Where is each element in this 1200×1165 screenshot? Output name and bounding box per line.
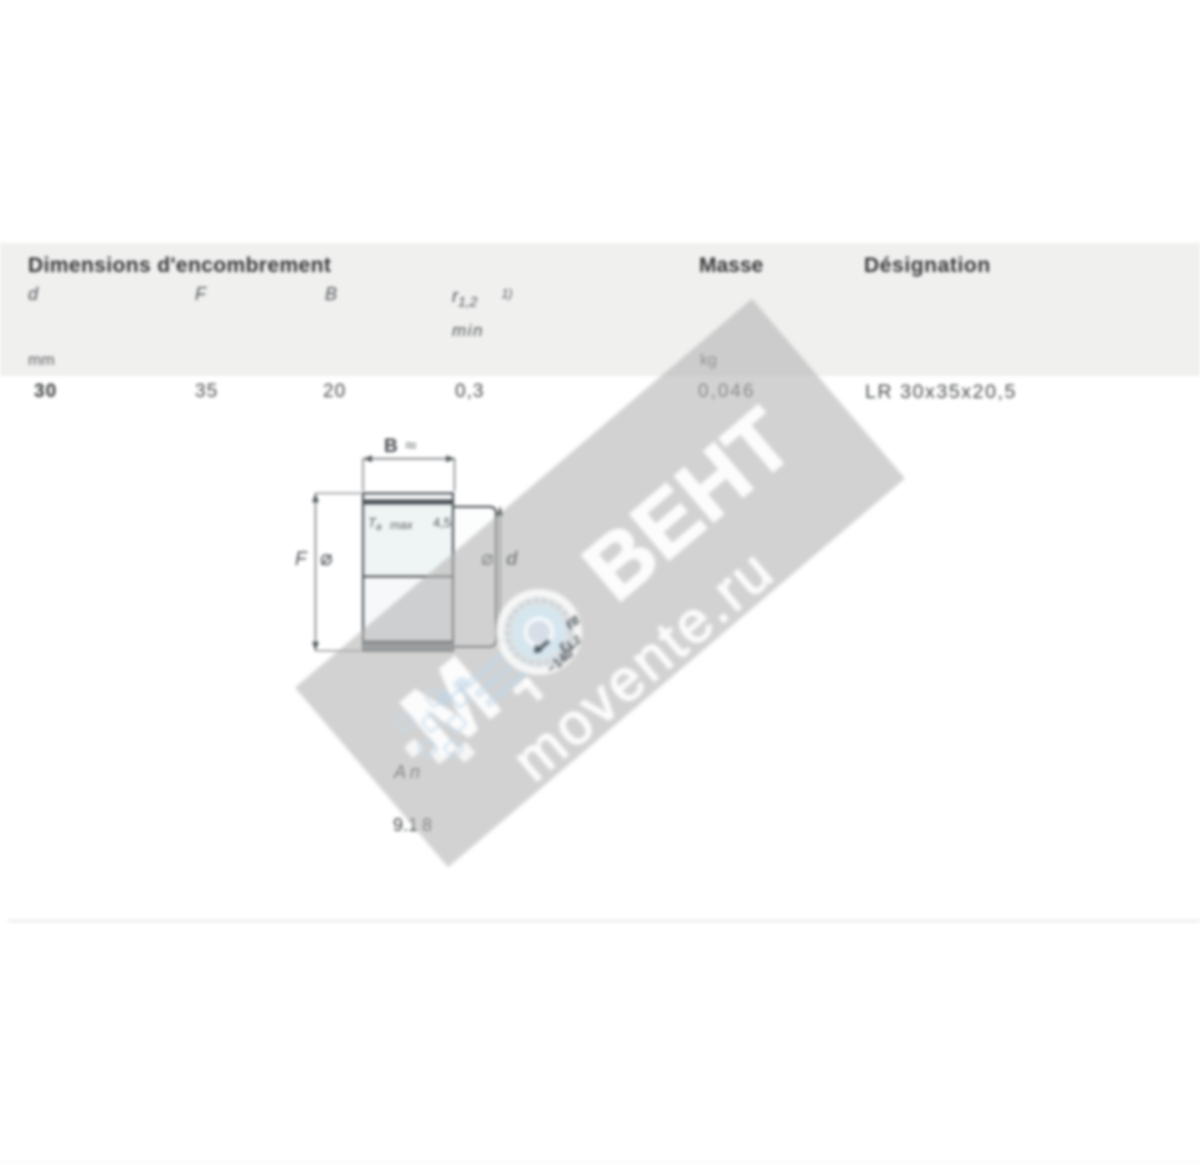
svg-text:rг: rг: [562, 611, 584, 633]
svg-text:9.18: 9.18: [393, 815, 432, 835]
svg-text:max: max: [390, 518, 414, 532]
svg-text:F: F: [295, 549, 308, 570]
svg-text:⌀: ⌀: [320, 547, 333, 570]
svg-text:≈: ≈: [405, 437, 417, 456]
svg-text:B: B: [384, 436, 398, 457]
svg-text:d: d: [506, 549, 518, 570]
svg-text:An: An: [393, 762, 420, 782]
svg-text:4,5: 4,5: [433, 515, 451, 530]
svg-text:⌀: ⌀: [481, 547, 494, 570]
